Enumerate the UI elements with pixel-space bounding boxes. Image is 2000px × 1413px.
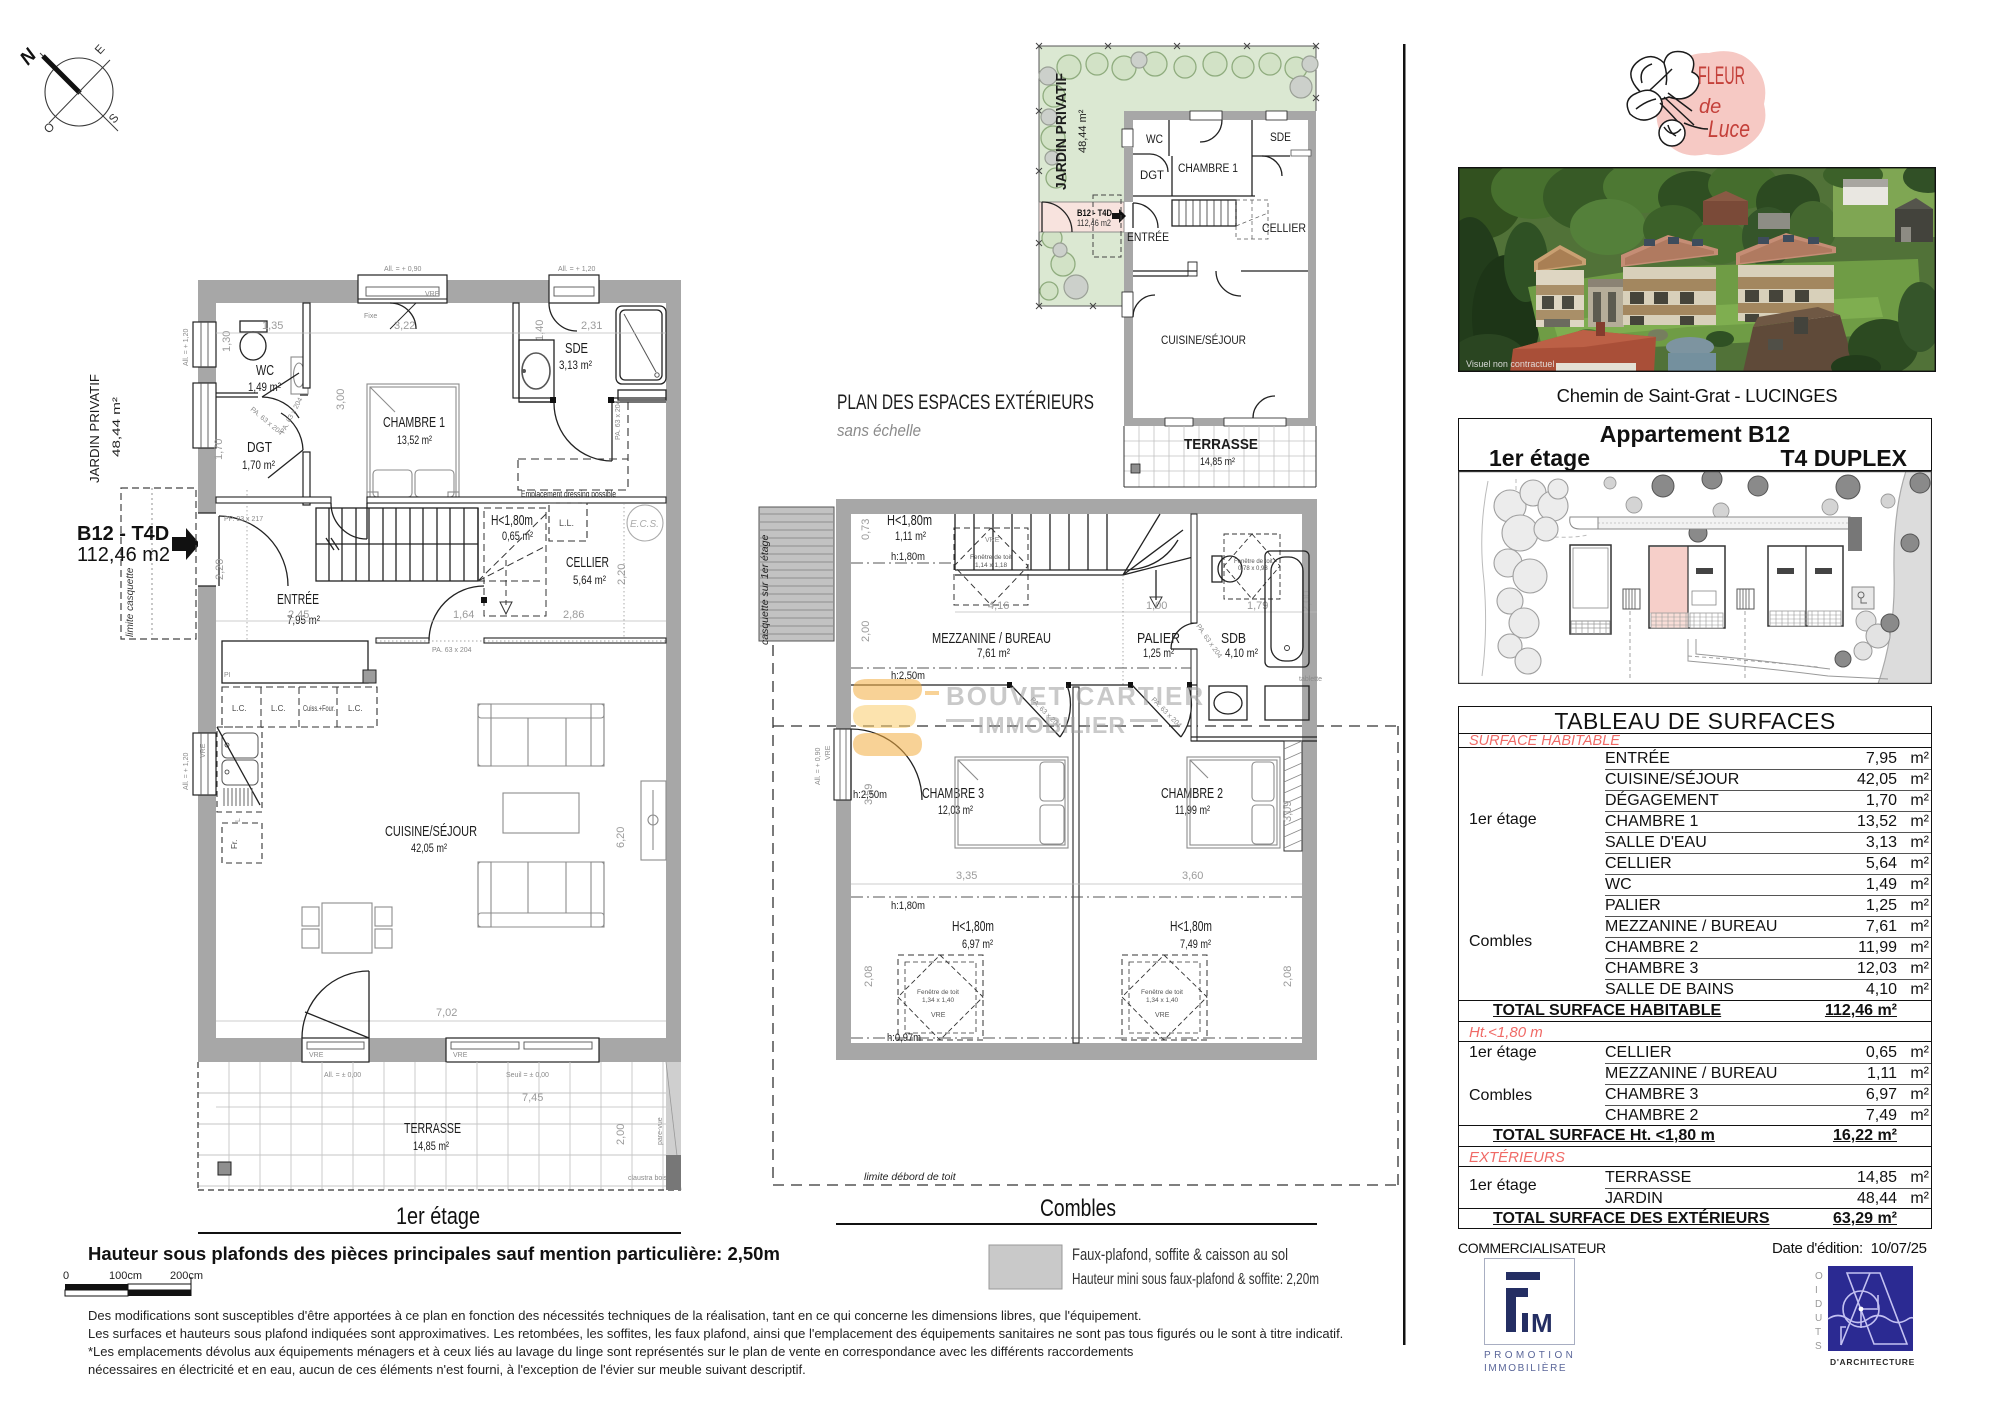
svg-text:PI: PI: [224, 672, 231, 679]
svg-text:h:1,80m: h:1,80m: [891, 900, 925, 912]
svg-text:Fixe: Fixe: [364, 313, 377, 320]
svg-text:CHAMBRE 3: CHAMBRE 3: [922, 785, 984, 802]
svg-text:Faux-plafond, soffite & caisso: Faux-plafond, soffite & caisson au sol: [1072, 1246, 1288, 1264]
svg-text:2,08: 2,08: [863, 966, 875, 987]
svg-text:I: I: [1815, 1285, 1818, 1296]
svg-text:H<1,80m: H<1,80m: [1170, 918, 1212, 935]
svg-text:2,00: 2,00: [860, 621, 872, 642]
svg-text:VRE: VRE: [200, 743, 207, 758]
svg-text:MEZZANINE / BUREAU: MEZZANINE / BUREAU: [932, 630, 1051, 647]
svg-text:Fenêtre de toit: Fenêtre de toit: [1234, 559, 1273, 565]
svg-text:U: U: [1815, 1313, 1822, 1324]
svg-text:2,86: 2,86: [563, 609, 584, 621]
svg-text:CHAMBRE 1: CHAMBRE 1: [383, 414, 445, 431]
svg-text:VRE: VRE: [425, 291, 440, 298]
svg-text:6,20: 6,20: [615, 827, 627, 848]
svg-text:4,10 m²: 4,10 m²: [1225, 646, 1258, 660]
svg-text:11,99 m²: 11,99 m²: [1175, 803, 1210, 817]
svg-text:h:2,50m: h:2,50m: [853, 789, 887, 801]
svg-text:0,65 m²: 0,65 m²: [502, 529, 533, 543]
svg-text:PA. 63 x 204: PA. 63 x 204: [432, 647, 472, 654]
svg-text:2,20: 2,20: [616, 564, 628, 585]
svg-text:1,14 x 1,18: 1,14 x 1,18: [975, 562, 1008, 569]
svg-text:L.L.: L.L.: [559, 518, 574, 528]
svg-text:ENTRÉE: ENTRÉE: [277, 591, 319, 608]
svg-text:5,64 m²: 5,64 m²: [573, 573, 606, 587]
svg-text:1er étage: 1er étage: [396, 1203, 480, 1230]
svg-text:PROMOTION: PROMOTION: [1484, 1350, 1576, 1361]
svg-text:13,52 m²: 13,52 m²: [397, 433, 432, 447]
svg-text:VRE: VRE: [985, 537, 1000, 544]
svg-text:VRE: VRE: [453, 1052, 468, 1059]
svg-text:Luce: Luce: [1708, 116, 1750, 143]
svg-text:1,70 m²: 1,70 m²: [242, 458, 275, 472]
svg-text:VRE: VRE: [1155, 1012, 1170, 1019]
svg-text:200cm: 200cm: [170, 1270, 203, 1282]
svg-text:limite casquette: limite casquette: [125, 567, 136, 637]
svg-text:1,25 m²: 1,25 m²: [1143, 646, 1174, 660]
svg-text:B12 - T4D: B12 - T4D: [77, 523, 169, 545]
svg-text:1,34 x 1,40: 1,34 x 1,40: [1146, 997, 1179, 1004]
svg-text:3,09: 3,09: [1282, 801, 1294, 822]
svg-text:PA. 63 x 204: PA. 63 x 204: [249, 406, 284, 437]
svg-text:All. = ± 0,00: All. = ± 0,00: [324, 1072, 361, 1079]
svg-text:VRE: VRE: [931, 1012, 946, 1019]
svg-text:N: N: [16, 44, 42, 69]
svg-text:Seuil = ± 0,00: Seuil = ± 0,00: [506, 1072, 549, 1079]
svg-text:L: L: [235, 818, 242, 822]
svg-text:H<1,80m: H<1,80m: [491, 512, 533, 529]
svg-text:1,49 m²: 1,49 m²: [248, 380, 281, 394]
svg-text:IMMOBILIÈRE: IMMOBILIÈRE: [1484, 1361, 1567, 1373]
svg-text:7,61 m²: 7,61 m²: [977, 646, 1010, 660]
svg-text:CELLIER: CELLIER: [566, 554, 609, 571]
svg-text:VRE: VRE: [309, 1052, 324, 1059]
svg-text:WC: WC: [256, 362, 274, 379]
svg-text:ENTRÉE: ENTRÉE: [1127, 231, 1169, 244]
svg-text:SDE: SDE: [1270, 132, 1291, 144]
svg-text:100cm: 100cm: [109, 1270, 142, 1282]
svg-text:All. = + 1,20: All. = + 1,20: [183, 753, 190, 790]
svg-text:de: de: [1699, 96, 1721, 118]
svg-text:O: O: [1815, 1271, 1823, 1282]
svg-text:TERRASSE: TERRASSE: [404, 1120, 461, 1137]
svg-text:3,60: 3,60: [1182, 870, 1203, 882]
svg-text:S: S: [1815, 1341, 1822, 1352]
svg-text:1,34 x 1,40: 1,34 x 1,40: [922, 997, 955, 1004]
svg-text:D'ARCHITECTURE: D'ARCHITECTURE: [1830, 1357, 1915, 1367]
svg-text:H<1,80m: H<1,80m: [887, 512, 932, 529]
svg-text:PP. 93 x 217: PP. 93 x 217: [224, 516, 263, 523]
svg-text:CUISINE/SÉJOUR: CUISINE/SÉJOUR: [1161, 334, 1246, 347]
svg-text:Fenêtre de toit: Fenêtre de toit: [1141, 989, 1183, 996]
svg-text:48,44 m²: 48,44 m²: [1077, 109, 1089, 153]
svg-text:14,85 m²: 14,85 m²: [1200, 456, 1235, 468]
svg-text:SDB: SDB: [1221, 630, 1246, 647]
svg-text:T: T: [1815, 1327, 1821, 1338]
svg-text:2,45: 2,45: [288, 609, 309, 621]
svg-text:E.C.S.: E.C.S.: [630, 519, 659, 530]
svg-text:7,49 m²: 7,49 m²: [1180, 937, 1211, 951]
svg-text:All. = + 0,90: All. = + 0,90: [815, 748, 822, 785]
svg-text:Combles: Combles: [1040, 1195, 1116, 1222]
svg-text:BOUVET CARTIER: BOUVET CARTIER: [946, 681, 1205, 711]
svg-text:tablette: tablette: [1299, 676, 1322, 683]
svg-text:WC: WC: [1146, 134, 1163, 146]
svg-text:0: 0: [63, 1270, 69, 1282]
svg-text:Fr.: Fr.: [230, 840, 239, 849]
svg-text:H<1,80m: H<1,80m: [952, 918, 994, 935]
svg-text:L.C.: L.C.: [232, 704, 247, 713]
svg-text:CELLIER: CELLIER: [1262, 223, 1306, 235]
svg-text:L.C.: L.C.: [271, 704, 286, 713]
svg-text:All. = + 0,90: All. = + 0,90: [384, 266, 421, 273]
svg-text:VRE: VRE: [825, 745, 832, 760]
svg-text:L.C.: L.C.: [348, 704, 363, 713]
svg-text:M: M: [1531, 1308, 1553, 1338]
svg-text:6,97 m²: 6,97 m²: [962, 937, 993, 951]
svg-text:1,70: 1,70: [213, 439, 225, 460]
svg-text:FLEUR: FLEUR: [1698, 62, 1745, 90]
svg-text:3,22: 3,22: [394, 320, 415, 332]
svg-text:E: E: [92, 42, 108, 57]
svg-text:CHAMBRE 2: CHAMBRE 2: [1161, 785, 1223, 802]
svg-text:PLAN DES ESPACES EXTÉRIEURS: PLAN DES ESPACES EXTÉRIEURS: [837, 391, 1094, 414]
svg-text:0,78 x 0,98: 0,78 x 0,98: [1238, 566, 1268, 572]
svg-text:3,13 m²: 3,13 m²: [559, 358, 592, 372]
svg-text:SDE: SDE: [565, 340, 588, 357]
svg-text:PA. 63 x 204: PA. 63 x 204: [1194, 623, 1222, 660]
svg-text:h:1,80m: h:1,80m: [891, 551, 925, 563]
svg-text:Visuel non contractuel: Visuel non contractuel: [1466, 359, 1554, 369]
svg-text:casquette sur 1er étage: casquette sur 1er étage: [759, 535, 771, 645]
svg-text:claustra bois: claustra bois: [628, 1175, 668, 1182]
svg-text:CHAMBRE 1: CHAMBRE 1: [1178, 163, 1238, 175]
svg-text:2,00: 2,00: [615, 1124, 627, 1145]
svg-text:112,46 m2: 112,46 m2: [77, 544, 170, 566]
svg-text:42,05 m²: 42,05 m²: [411, 841, 447, 855]
svg-text:O: O: [41, 120, 58, 136]
svg-text:1,64: 1,64: [453, 609, 474, 621]
svg-text:7,02: 7,02: [436, 1007, 457, 1019]
svg-text:1,35: 1,35: [262, 320, 283, 332]
svg-text:14,85 m²: 14,85 m²: [413, 1139, 449, 1153]
svg-text:2,08: 2,08: [1282, 966, 1294, 987]
svg-text:limite débord de toit: limite débord de toit: [864, 1171, 957, 1183]
svg-text:All. = + 1,20: All. = + 1,20: [558, 266, 595, 273]
svg-text:1,30: 1,30: [221, 331, 233, 352]
svg-text:DGT: DGT: [247, 439, 272, 456]
svg-text:sans échelle: sans échelle: [837, 421, 921, 440]
svg-text:Fenêtre de toit: Fenêtre de toit: [970, 554, 1012, 561]
svg-text:pare-vue: pare-vue: [657, 1117, 664, 1145]
svg-text:Cuiss.+Four.: Cuiss.+Four.: [303, 704, 335, 713]
svg-text:IMMOBILIER: IMMOBILIER: [978, 712, 1126, 738]
svg-text:1,11 m²: 1,11 m²: [895, 529, 926, 543]
svg-text:S: S: [106, 111, 122, 126]
svg-text:h:0,97m: h:0,97m: [887, 1032, 921, 1044]
svg-text:DGT: DGT: [1140, 170, 1164, 182]
svg-text:Hauteur mini sous faux-plafond: Hauteur mini sous faux-plafond & soffite…: [1072, 1271, 1319, 1288]
svg-text:TERRASSE: TERRASSE: [1184, 436, 1258, 453]
svg-text:2,20: 2,20: [214, 559, 226, 580]
svg-text:All. = + 1,20: All. = + 1,20: [183, 329, 190, 366]
svg-text:7,45: 7,45: [522, 1092, 543, 1104]
svg-text:112,46 m2: 112,46 m2: [1077, 218, 1111, 228]
svg-text:3,35: 3,35: [956, 870, 977, 882]
svg-text:CUISINE/SÉJOUR: CUISINE/SÉJOUR: [385, 823, 477, 840]
svg-text:Fenêtre de toit: Fenêtre de toit: [917, 989, 959, 996]
svg-text:3,00: 3,00: [335, 389, 347, 410]
svg-text:JARDIN PRIVATIF: JARDIN PRIVATIF: [87, 374, 102, 483]
svg-text:48,44 m²: 48,44 m²: [111, 397, 123, 457]
svg-text:1,00: 1,00: [1146, 600, 1167, 612]
svg-text:0,73: 0,73: [860, 519, 872, 540]
svg-text:4,16: 4,16: [988, 600, 1009, 612]
svg-text:2,31: 2,31: [581, 320, 602, 332]
svg-text:1,40: 1,40: [534, 320, 546, 341]
svg-text:D: D: [1815, 1299, 1822, 1310]
svg-text:PA. 63 x 204: PA. 63 x 204: [615, 400, 622, 440]
svg-text:JARDIN PRIVATIF: JARDIN PRIVATIF: [1053, 73, 1070, 190]
